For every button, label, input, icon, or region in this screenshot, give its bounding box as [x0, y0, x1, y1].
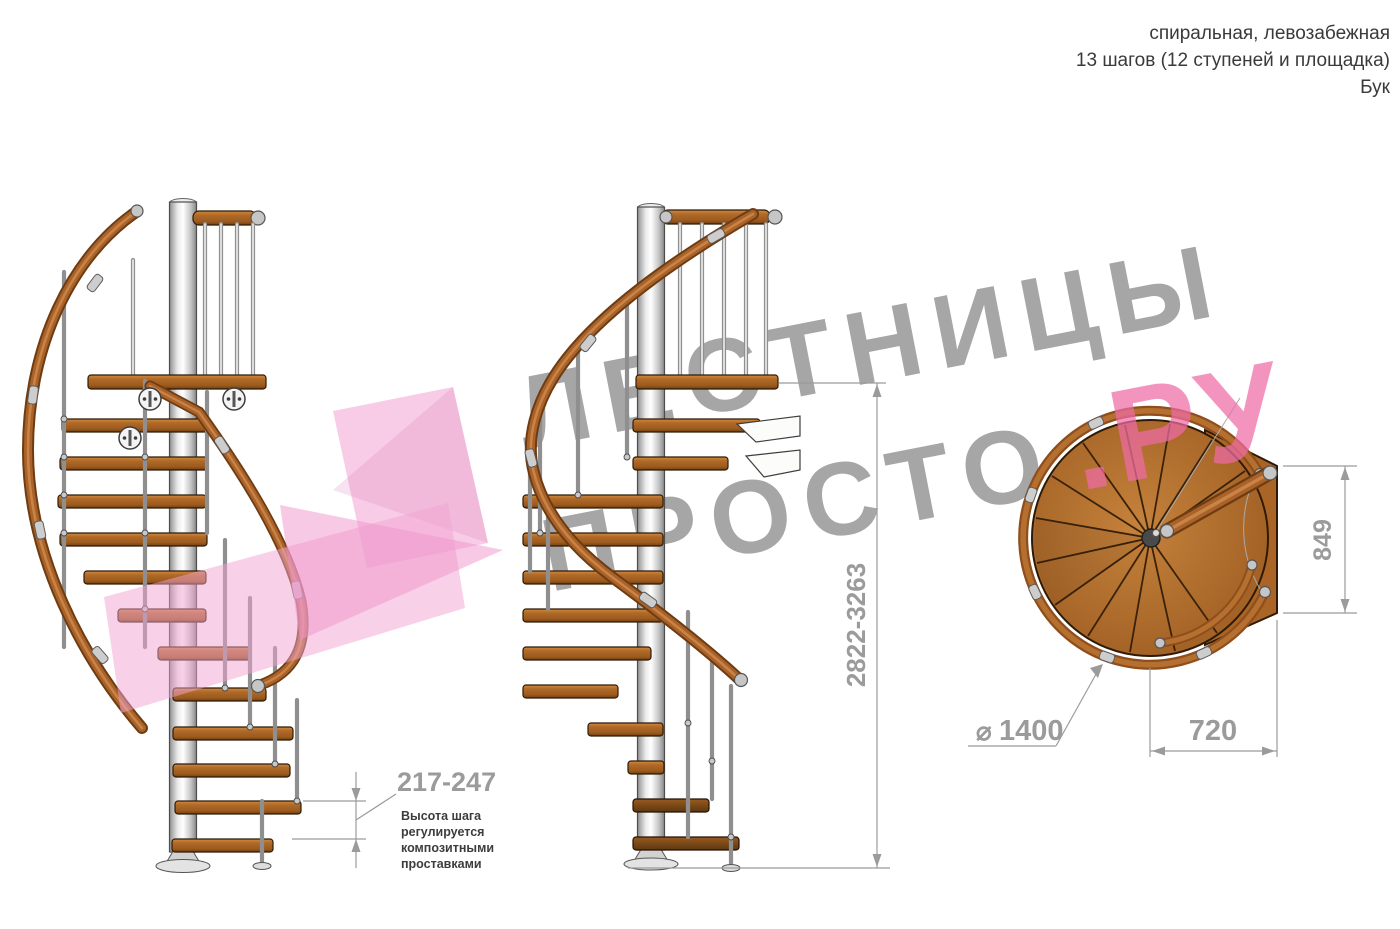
handrail-end-cap: [252, 680, 265, 693]
diameter-label: 1400: [999, 715, 1064, 747]
knob: [272, 761, 278, 767]
disc-connector: [223, 388, 245, 410]
knob: [575, 492, 581, 498]
step: [633, 457, 728, 470]
note-line-3: композитными: [401, 841, 494, 855]
drawing-canvas: ЛЕСТНИЦЫ ПРОСТО: [0, 0, 1400, 929]
landing-width-label: 720: [1189, 715, 1237, 747]
technical-drawing-page: спиральная, левозабежная 13 шагов (12 ст…: [0, 0, 1400, 929]
note-line-2: регулируется: [401, 825, 484, 839]
arrow-down: [1341, 599, 1350, 612]
knob: [537, 530, 543, 536]
platform-board: [88, 375, 266, 389]
arrow-down: [873, 854, 882, 867]
disc-connector: [119, 427, 141, 449]
knob: [709, 758, 715, 764]
arrow-left: [1152, 747, 1165, 756]
step: [523, 685, 618, 698]
dim-landing-depth: 849: [1283, 466, 1357, 613]
note-line-1: Высота шага: [401, 809, 482, 823]
dim-diameter: ⌀ 1400: [968, 664, 1103, 747]
knob: [247, 724, 253, 730]
arrow-up: [352, 839, 361, 852]
guard-end-cap: [1155, 638, 1165, 648]
spec-header: спиральная, левозабежная 13 шагов (12 ст…: [1076, 20, 1390, 101]
knob: [685, 720, 691, 726]
knob: [222, 685, 228, 691]
step: [60, 533, 207, 546]
step: [60, 457, 208, 470]
ring-collar: [1098, 650, 1115, 664]
step: [175, 801, 301, 814]
handrail-end-cap: [131, 205, 143, 217]
step-height-label: 217-247: [397, 767, 496, 797]
step: [523, 571, 663, 584]
step: [588, 723, 663, 736]
note-line-4: проставками: [401, 857, 482, 871]
knob: [294, 798, 300, 804]
dim-step-height: 217-247 Высота шага регулируется компози…: [292, 767, 496, 871]
knob: [61, 492, 67, 498]
rod-foot: [253, 863, 271, 870]
spec-material: Бук: [1076, 74, 1390, 101]
knob: [728, 834, 734, 840]
spec-type: спиральная, левозабежная: [1076, 20, 1390, 47]
spec-steps-count: 13 шагов (12 ступеней и площадка): [1076, 47, 1390, 74]
pole-base-flange: [156, 860, 210, 873]
handrail-end-cap: [735, 674, 748, 687]
step: [523, 533, 663, 546]
bar-end-cap: [1161, 525, 1174, 538]
knob: [624, 454, 630, 460]
step: [633, 837, 739, 850]
rail-collar: [27, 385, 38, 404]
guard-end-cap: [1247, 560, 1257, 570]
diameter-symbol: ⌀: [976, 716, 992, 746]
center-pole: [638, 207, 665, 850]
knob: [142, 454, 148, 460]
top-guard-rail: [193, 211, 256, 225]
ring-end-cap: [1260, 587, 1271, 598]
step: [58, 495, 206, 508]
step: [628, 761, 664, 774]
step: [523, 609, 663, 622]
arrow-right: [1262, 747, 1275, 756]
plan-center-bolt: [1153, 530, 1160, 537]
ring-collar: [1028, 583, 1042, 600]
knob: [61, 530, 67, 536]
knob: [142, 530, 148, 536]
rail-end-cap: [660, 211, 672, 223]
rail-end-cap: [768, 210, 782, 224]
arrow-leader: [1090, 664, 1103, 678]
rail-collar: [86, 273, 104, 293]
step: [633, 799, 709, 812]
arrow-down: [352, 788, 361, 801]
knob: [61, 416, 67, 422]
watermark-arrow-logo: [104, 387, 503, 713]
total-height-label: 2822-3263: [841, 563, 871, 687]
center-pole: [170, 202, 197, 852]
disc-connector: [139, 388, 161, 410]
step: [172, 839, 273, 852]
landing-depth-label: 849: [1309, 519, 1337, 561]
knob: [61, 454, 67, 460]
ring-collar: [1195, 646, 1212, 660]
left-elevation-view: [27, 199, 303, 873]
arrow-up: [1341, 467, 1350, 480]
platform-board: [636, 375, 778, 389]
step: [523, 647, 651, 660]
